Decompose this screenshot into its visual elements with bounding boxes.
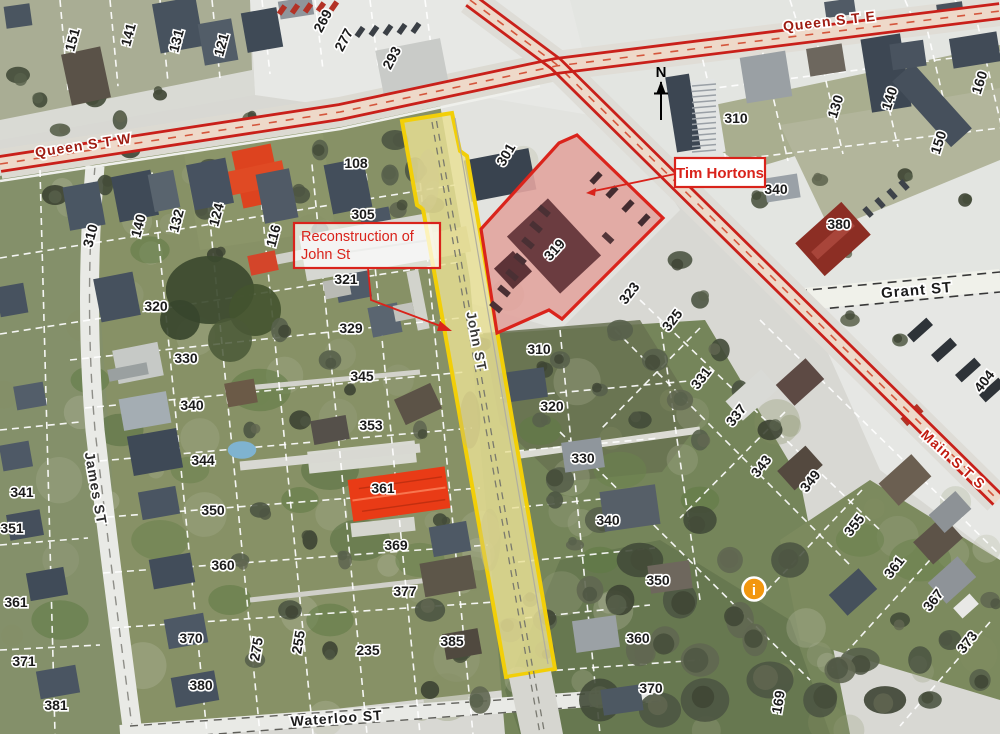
svg-text:Tim Hortons: Tim Hortons — [676, 165, 764, 182]
svg-text:344: 344 — [191, 452, 215, 468]
svg-text:329: 329 — [339, 320, 363, 336]
svg-text:John St: John St — [301, 247, 350, 263]
svg-text:371: 371 — [12, 653, 36, 669]
svg-text:N: N — [656, 64, 667, 81]
svg-text:361: 361 — [371, 480, 395, 496]
svg-text:350: 350 — [646, 572, 670, 588]
svg-text:305: 305 — [351, 206, 375, 222]
svg-text:108: 108 — [344, 155, 368, 171]
svg-text:321: 321 — [334, 271, 358, 287]
svg-text:345: 345 — [350, 368, 374, 384]
svg-text:320: 320 — [540, 398, 564, 414]
svg-text:340: 340 — [596, 512, 620, 528]
svg-text:360: 360 — [626, 630, 650, 646]
svg-text:340: 340 — [180, 397, 204, 413]
svg-text:Reconstruction of: Reconstruction of — [301, 229, 415, 245]
svg-text:350: 350 — [201, 502, 225, 518]
svg-text:235: 235 — [356, 642, 380, 658]
svg-text:381: 381 — [44, 697, 68, 713]
svg-text:385: 385 — [440, 633, 464, 649]
svg-text:320: 320 — [144, 298, 168, 314]
svg-text:341: 341 — [10, 484, 34, 500]
svg-text:380: 380 — [189, 677, 213, 693]
svg-text:310: 310 — [724, 110, 748, 126]
svg-text:370: 370 — [179, 630, 203, 646]
svg-text:361: 361 — [4, 594, 28, 610]
svg-text:380: 380 — [827, 216, 851, 232]
svg-text:353: 353 — [359, 417, 383, 433]
svg-text:369: 369 — [384, 537, 408, 553]
svg-text:i: i — [752, 582, 756, 599]
svg-text:330: 330 — [571, 450, 595, 466]
svg-text:377: 377 — [393, 583, 417, 599]
svg-text:370: 370 — [639, 680, 663, 696]
svg-text:360: 360 — [211, 557, 235, 573]
svg-text:310: 310 — [527, 341, 551, 357]
svg-text:340: 340 — [764, 181, 788, 197]
svg-text:351: 351 — [0, 520, 24, 536]
svg-text:330: 330 — [174, 350, 198, 366]
